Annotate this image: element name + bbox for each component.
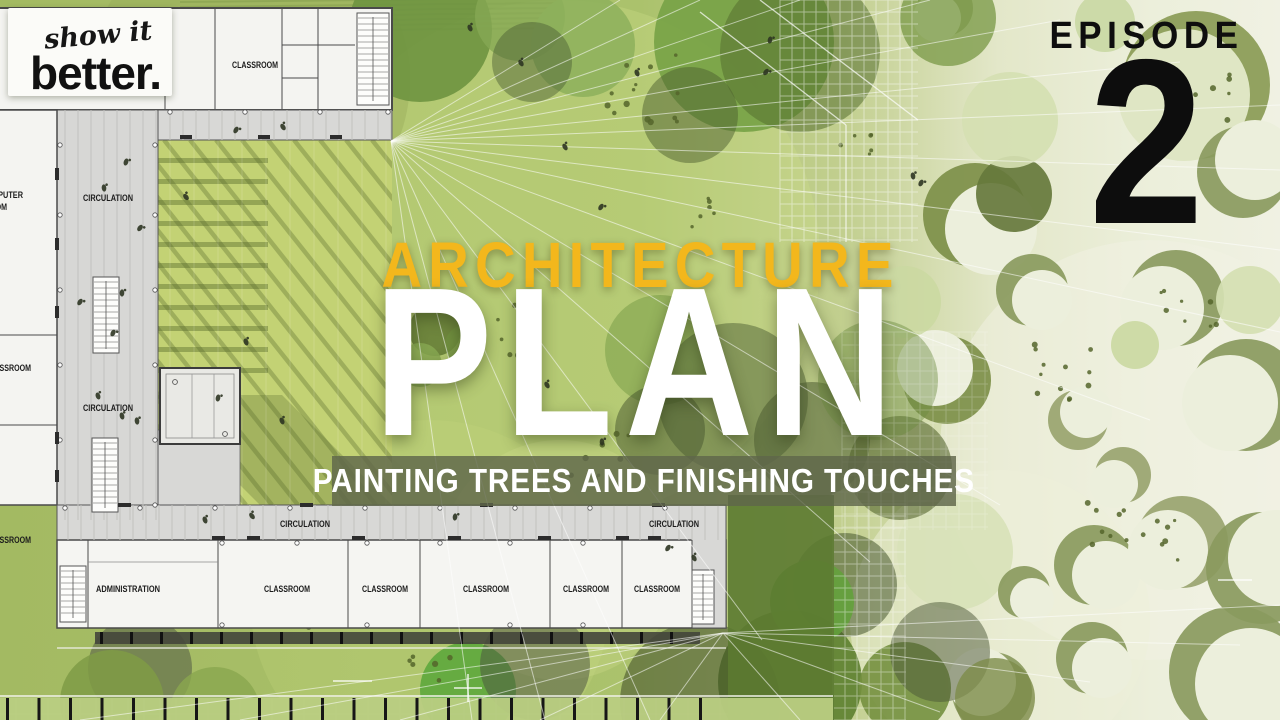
shrub-dot bbox=[676, 91, 680, 95]
crescent-bite bbox=[1060, 386, 1112, 438]
shrub-dot bbox=[1100, 529, 1105, 534]
shrub-dot bbox=[1178, 106, 1183, 111]
pergola-beam-shadow bbox=[158, 263, 268, 268]
door-mark bbox=[538, 536, 551, 540]
shrub-dot bbox=[1162, 289, 1166, 293]
shrub-dot bbox=[1176, 558, 1180, 562]
fence-tick bbox=[573, 698, 576, 720]
canopy-tick bbox=[430, 632, 433, 644]
shrub-dot bbox=[507, 352, 512, 357]
shrub-dot bbox=[626, 434, 630, 438]
fence-tick bbox=[479, 698, 482, 720]
crescent-bite bbox=[1090, 460, 1138, 508]
shrub-dot bbox=[1042, 363, 1046, 367]
column bbox=[153, 213, 157, 217]
shrub-dot bbox=[1124, 538, 1128, 542]
fence-tick bbox=[290, 698, 293, 720]
bottom-wing bbox=[57, 505, 726, 648]
canopy-tick bbox=[100, 632, 103, 644]
pergola-beam-shadow bbox=[158, 158, 268, 163]
shrub-dot bbox=[648, 64, 653, 69]
shrub-dot bbox=[634, 83, 637, 86]
plan-room-label: CIRCULATION bbox=[649, 519, 699, 529]
thumbnail-stage: CLASSROOMCOMPUTERROOMCIRCULATIONCLASSROO… bbox=[0, 0, 1280, 720]
shrub-dot bbox=[712, 211, 716, 215]
canopy-tick bbox=[550, 632, 553, 644]
shrub-dot bbox=[1035, 391, 1040, 396]
column bbox=[243, 110, 247, 114]
staircase bbox=[93, 277, 119, 353]
crescent-bite bbox=[1072, 638, 1132, 698]
shrub-dot bbox=[624, 63, 629, 68]
crescent-tree bbox=[962, 72, 1058, 168]
door-mark bbox=[352, 536, 365, 540]
column bbox=[153, 503, 157, 507]
shrub-dot bbox=[1085, 500, 1091, 506]
tree-canopy bbox=[642, 67, 738, 163]
canopy-tick bbox=[490, 632, 493, 644]
tree-canopy bbox=[492, 22, 572, 102]
shrub-dot bbox=[1087, 370, 1091, 374]
column bbox=[220, 541, 224, 545]
door-mark bbox=[258, 135, 270, 139]
plan-room-label: COMPUTER bbox=[0, 190, 23, 200]
canopy-tick bbox=[340, 632, 343, 644]
shrub-dot bbox=[1186, 117, 1190, 121]
crescent-bite bbox=[1012, 270, 1072, 330]
shrub-dot bbox=[1226, 76, 1232, 82]
door-mark bbox=[55, 238, 59, 250]
column bbox=[153, 143, 157, 147]
column bbox=[153, 288, 157, 292]
shrub-dot bbox=[610, 91, 614, 95]
shrub-dot bbox=[838, 143, 843, 148]
shrub-dot bbox=[1182, 93, 1188, 99]
dark-planting-patch bbox=[728, 495, 834, 720]
fence-tick bbox=[447, 698, 450, 720]
plan-room-label: CLASSROOM bbox=[463, 584, 509, 594]
shrub-dot bbox=[612, 111, 616, 115]
shrub-dot bbox=[1039, 373, 1042, 376]
pergola-beam-shadow bbox=[158, 305, 268, 310]
plan-room-label: CIRCULATION bbox=[280, 519, 330, 529]
shrub-dot bbox=[1032, 342, 1038, 348]
column bbox=[508, 623, 512, 627]
plan-room-label: CIRCULATION bbox=[83, 403, 133, 413]
shrub-dot bbox=[447, 655, 452, 660]
plan-room-label: CLASSROOM bbox=[563, 584, 609, 594]
shrub-dot bbox=[868, 152, 871, 155]
column bbox=[58, 213, 62, 217]
shrub-dot bbox=[569, 473, 574, 478]
column bbox=[138, 506, 142, 510]
column bbox=[438, 541, 442, 545]
shrub-dot bbox=[437, 678, 442, 683]
canopy-tick bbox=[400, 632, 403, 644]
staircase bbox=[692, 570, 714, 624]
shrub-dot bbox=[1183, 319, 1186, 322]
person-head bbox=[124, 289, 127, 292]
shrub-dot bbox=[496, 318, 500, 322]
shrub-dot bbox=[1094, 508, 1099, 513]
staircase bbox=[357, 13, 389, 105]
shrub-dot bbox=[432, 661, 438, 667]
shrub-dot bbox=[1122, 508, 1126, 512]
shrub-dot bbox=[1193, 92, 1198, 97]
tree-canopy bbox=[615, 385, 705, 475]
canopy-tick bbox=[580, 632, 583, 644]
door-mark bbox=[55, 306, 59, 318]
door-mark bbox=[212, 536, 225, 540]
fence-tick bbox=[132, 698, 135, 720]
door-mark bbox=[247, 536, 260, 540]
shrub-dot bbox=[1165, 525, 1170, 530]
shrub-dot bbox=[1117, 512, 1122, 517]
door-mark bbox=[480, 503, 493, 507]
pergola-beam-shadow bbox=[158, 347, 268, 352]
pergola-beam-shadow bbox=[158, 284, 268, 289]
shrub-dot bbox=[690, 225, 693, 228]
canopy-tick bbox=[190, 632, 193, 644]
shrub-dot bbox=[1214, 322, 1219, 327]
fence-tick bbox=[38, 698, 41, 720]
door-mark bbox=[55, 470, 59, 482]
column bbox=[513, 506, 517, 510]
shrub-dot bbox=[623, 101, 629, 107]
door-mark bbox=[55, 168, 59, 180]
column bbox=[588, 506, 592, 510]
pergola-beam-shadow bbox=[158, 326, 268, 331]
canopy-tick bbox=[160, 632, 163, 644]
canopy-tick bbox=[310, 632, 313, 644]
column bbox=[58, 143, 62, 147]
canopy-tick bbox=[220, 632, 223, 644]
shrub-dot bbox=[1141, 532, 1146, 537]
tree-canopy bbox=[445, 325, 485, 365]
plan-room-label: ROOM bbox=[0, 202, 7, 212]
fence-tick bbox=[384, 698, 387, 720]
column bbox=[581, 623, 585, 627]
canopy-tick bbox=[130, 632, 133, 644]
fence-tick bbox=[699, 698, 702, 720]
shrub-dot bbox=[698, 214, 702, 218]
shrub-dot bbox=[1063, 364, 1068, 369]
shrub-dot bbox=[1224, 117, 1230, 123]
column bbox=[58, 363, 62, 367]
fence-tick bbox=[636, 698, 639, 720]
fence-tick bbox=[321, 698, 324, 720]
shrub-dot bbox=[1209, 324, 1212, 327]
shrub-dot bbox=[853, 134, 856, 137]
site-plan-scene: CLASSROOMCOMPUTERROOMCIRCULATIONCLASSROO… bbox=[0, 0, 1280, 720]
terrace bbox=[160, 368, 240, 444]
pergola-beam-shadow bbox=[158, 221, 268, 226]
crescent-bite bbox=[1010, 578, 1054, 622]
column bbox=[363, 506, 367, 510]
fence-tick bbox=[69, 698, 72, 720]
plan-room-label: CLASSROOM bbox=[362, 584, 408, 594]
pergola-beam-shadow bbox=[158, 242, 268, 247]
bottom-fence-band bbox=[0, 696, 833, 720]
shrub-dot bbox=[520, 354, 524, 358]
shrub-dot bbox=[597, 473, 600, 476]
plan-room-label: CIRCULATION bbox=[83, 193, 133, 203]
column bbox=[581, 541, 585, 545]
canopy-tick bbox=[640, 632, 643, 644]
door-mark bbox=[55, 432, 59, 444]
fence-tick bbox=[195, 698, 198, 720]
shrub-dot bbox=[632, 88, 635, 91]
shrub-dot bbox=[617, 456, 623, 462]
shrub-dot bbox=[1180, 300, 1183, 303]
canopy-tick bbox=[250, 632, 253, 644]
pergola-beam-shadow bbox=[158, 179, 268, 184]
column bbox=[153, 363, 157, 367]
column bbox=[168, 110, 172, 114]
west-wing bbox=[0, 110, 158, 520]
shrub-dot bbox=[1090, 542, 1096, 548]
shrub-dot bbox=[532, 339, 537, 344]
column bbox=[63, 506, 67, 510]
column bbox=[58, 288, 62, 292]
shrub-dot bbox=[869, 148, 873, 152]
column bbox=[438, 506, 442, 510]
door-mark bbox=[330, 135, 342, 139]
crescent-tree bbox=[1111, 321, 1159, 369]
canopy-tick bbox=[280, 632, 283, 644]
canopy-tick bbox=[370, 632, 373, 644]
shrub-dot bbox=[407, 658, 411, 662]
column bbox=[386, 110, 390, 114]
door-mark bbox=[118, 503, 131, 507]
door-mark bbox=[300, 503, 313, 507]
column bbox=[365, 623, 369, 627]
shrub-dot bbox=[411, 655, 416, 660]
column bbox=[220, 623, 224, 627]
shrub-dot bbox=[1227, 92, 1230, 95]
plan-room-label: CLASSROOM bbox=[264, 584, 310, 594]
shrub-dot bbox=[614, 431, 620, 437]
crescent-bite bbox=[1128, 510, 1208, 590]
column bbox=[508, 541, 512, 545]
door-mark bbox=[648, 536, 661, 540]
plan-room-label: CLASSROOM bbox=[0, 535, 31, 545]
door-mark bbox=[180, 135, 192, 139]
shrub-dot bbox=[1162, 538, 1168, 544]
column bbox=[213, 506, 217, 510]
shrub-dot bbox=[1173, 519, 1176, 522]
column bbox=[295, 541, 299, 545]
shrub-dot bbox=[410, 662, 415, 667]
shrub-dot bbox=[500, 337, 504, 341]
plan-room-label: CLASSROOM bbox=[232, 60, 278, 70]
fence-tick bbox=[227, 698, 230, 720]
fence-tick bbox=[416, 698, 419, 720]
shrub-dot bbox=[1210, 85, 1216, 91]
column bbox=[153, 438, 157, 442]
shrub-dot bbox=[1208, 299, 1214, 305]
shrub-dot bbox=[648, 119, 654, 125]
door-mark bbox=[448, 536, 461, 540]
shrub-dot bbox=[605, 102, 611, 108]
shrub-dot bbox=[1108, 534, 1112, 538]
shrub-dot bbox=[1088, 347, 1093, 352]
fence-tick bbox=[353, 698, 356, 720]
column bbox=[288, 506, 292, 510]
shrub-dot bbox=[1067, 396, 1072, 401]
shrub-dot bbox=[582, 455, 588, 461]
pergola-beam-shadow bbox=[158, 200, 268, 205]
plan-room-label: ADMINISTRATION bbox=[96, 584, 160, 594]
fence-tick bbox=[510, 698, 513, 720]
door-mark bbox=[616, 536, 629, 540]
shrub-dot bbox=[674, 53, 678, 57]
plan-room-label: CLASSROOM bbox=[0, 363, 31, 373]
shrub-dot bbox=[1086, 383, 1092, 389]
canopy-strip bbox=[95, 632, 700, 644]
shrub-dot bbox=[870, 133, 873, 136]
shrub-dot bbox=[526, 312, 532, 318]
shrub-dot bbox=[1176, 77, 1181, 82]
fence-tick bbox=[6, 698, 9, 720]
shrub-dot bbox=[1155, 519, 1160, 524]
fence-tick bbox=[605, 698, 608, 720]
plan-room-label: CLASSROOM bbox=[634, 584, 680, 594]
shrub-dot bbox=[707, 199, 712, 204]
shrub-dot bbox=[1033, 347, 1037, 351]
staircase bbox=[60, 566, 86, 622]
shrub-dot bbox=[675, 120, 679, 124]
crescent-bite bbox=[1182, 355, 1278, 451]
column bbox=[318, 110, 322, 114]
shrub-dot bbox=[515, 352, 521, 358]
column bbox=[365, 541, 369, 545]
staircase bbox=[92, 438, 118, 512]
